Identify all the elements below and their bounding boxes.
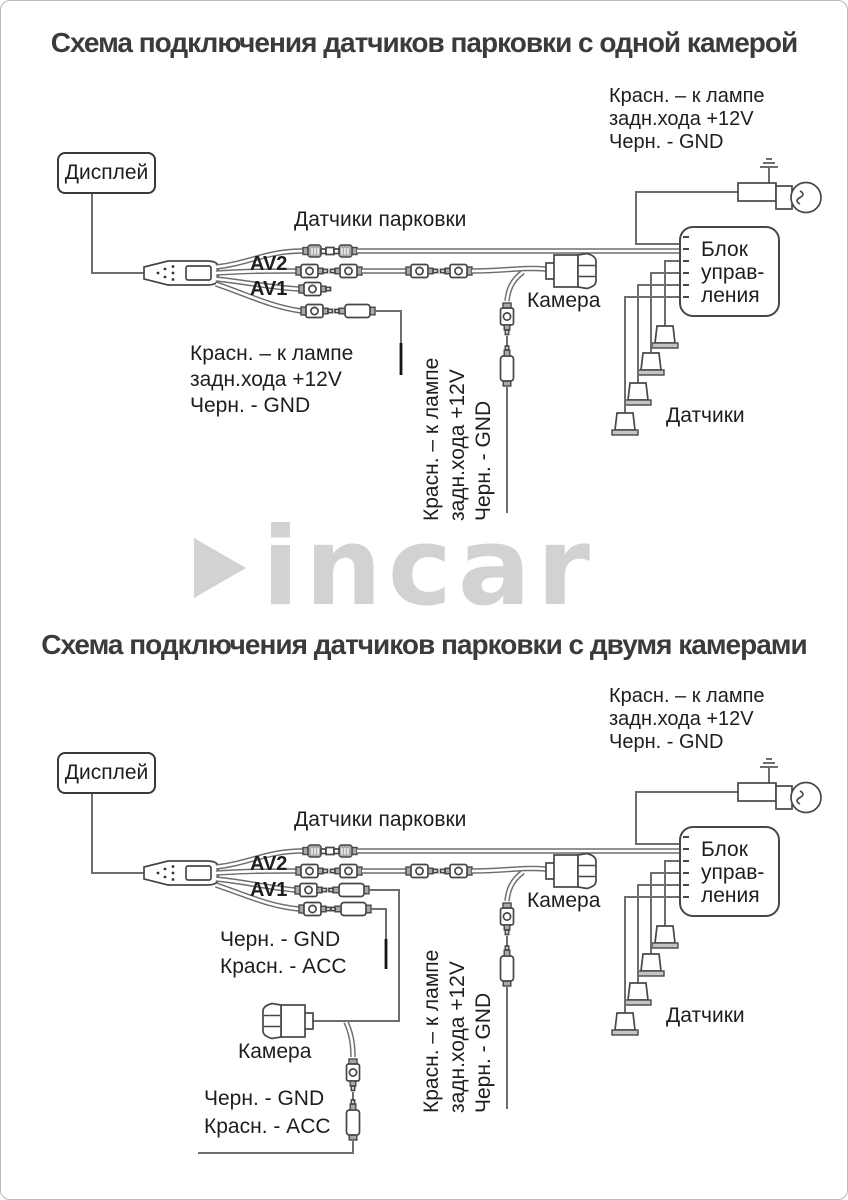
control-unit-2: Блок управ- ления [679, 826, 780, 917]
rca-connector [331, 865, 363, 878]
parking-sensor [625, 983, 651, 1005]
power-connector [501, 946, 514, 986]
display-label-1: Дисплей [65, 161, 149, 185]
control-unit-1: Блок управ- ления [679, 226, 780, 317]
rca-connector [299, 283, 331, 296]
rca-connector [296, 265, 328, 278]
rca-connector [406, 865, 438, 878]
rca-connector [301, 305, 333, 318]
parking-sensor [652, 926, 678, 948]
camera-rear-label-2: Камера [527, 888, 600, 914]
rca-connector [406, 265, 438, 278]
camera-connector [263, 1004, 313, 1039]
rca-connector [299, 903, 331, 916]
parking-sensor [638, 353, 664, 375]
parking-sensor [625, 383, 651, 405]
display-label-2: Дисплей [65, 761, 149, 785]
splitter-connector [144, 261, 218, 285]
reverse-lamp-note-1: Красн. – к лампе задн.хода +12V Черн. - … [609, 85, 765, 154]
rca-connector [295, 884, 327, 897]
display-cable [92, 194, 144, 273]
reverse-lamp-icon [738, 159, 821, 213]
camera-front-label-2: Камера [238, 1039, 311, 1065]
diagram2-title: Схема подключения датчиков парковки с дв… [1, 629, 847, 661]
av1-power-note-2: Черн. - GND Красн. - ACC [220, 926, 347, 980]
splitter-connector [144, 861, 218, 885]
diagram-page: Схема подключения датчиков парковки с од… [0, 0, 848, 1200]
parking-sensor [612, 413, 638, 435]
rca-connector [296, 865, 328, 878]
av1-label-2: AV1 [250, 877, 287, 903]
camera-connector [546, 854, 596, 889]
av1-label-1: AV1 [250, 276, 287, 302]
incar-logo-triangle-icon [194, 538, 246, 598]
reverse-lamp-note-2: Красн. – к лампе задн.хода +12V Черн. - … [609, 685, 765, 754]
display-box-2: Дисплей [57, 752, 156, 794]
power-connector [335, 305, 375, 318]
sensors-label-2: Датчики [666, 1003, 745, 1029]
camera-rear-power-note-2: Красн. – к лампе задн.хода +12V Черн. - … [419, 933, 497, 1113]
front-camera-power-wire [198, 1141, 353, 1153]
power-connector [347, 1100, 360, 1140]
rca-connector [501, 303, 514, 335]
rca-connector [441, 265, 473, 278]
rca-connector [441, 865, 473, 878]
camera-connector [546, 254, 596, 289]
incar-logo-text: incar [262, 528, 596, 608]
incar-logo: incar [194, 528, 596, 608]
parking-cable-label-2: Датчики парковки [294, 807, 466, 833]
av2-label-2: AV2 [250, 851, 287, 877]
spade-connector [334, 245, 357, 257]
display-cable [92, 794, 144, 873]
camera-label-1: Камера [527, 288, 600, 314]
camera-front-power-note-2: Черн. - GND Красн. - ACC [204, 1085, 331, 1141]
power-connector [501, 346, 514, 386]
spade-connector [303, 845, 326, 857]
power-connector [329, 884, 369, 897]
rca-connector [331, 265, 363, 278]
parking-sensor [612, 1013, 638, 1035]
diagram1-title: Схема подключения датчиков парковки с од… [1, 27, 847, 59]
parking-cable-label-1: Датчики парковки [294, 207, 466, 233]
rca-connector [501, 903, 514, 935]
display-box-1: Дисплей [57, 152, 156, 194]
camera-power-note-1: Красн. – к лампе задн.хода +12V Черн. - … [419, 341, 497, 521]
sensors-label-1: Датчики [666, 403, 745, 429]
spade-connector [334, 845, 357, 857]
av2-label-1: AV2 [250, 251, 287, 277]
av-power-note-1: Красн. – к лампе задн.хода +12V Черн. - … [190, 341, 353, 419]
reverse-lamp-icon [738, 759, 821, 813]
parking-sensor [652, 326, 678, 348]
parking-sensor [638, 954, 664, 976]
power-connector [331, 903, 371, 916]
rca-connector [347, 1059, 360, 1091]
spade-connector [303, 245, 326, 257]
